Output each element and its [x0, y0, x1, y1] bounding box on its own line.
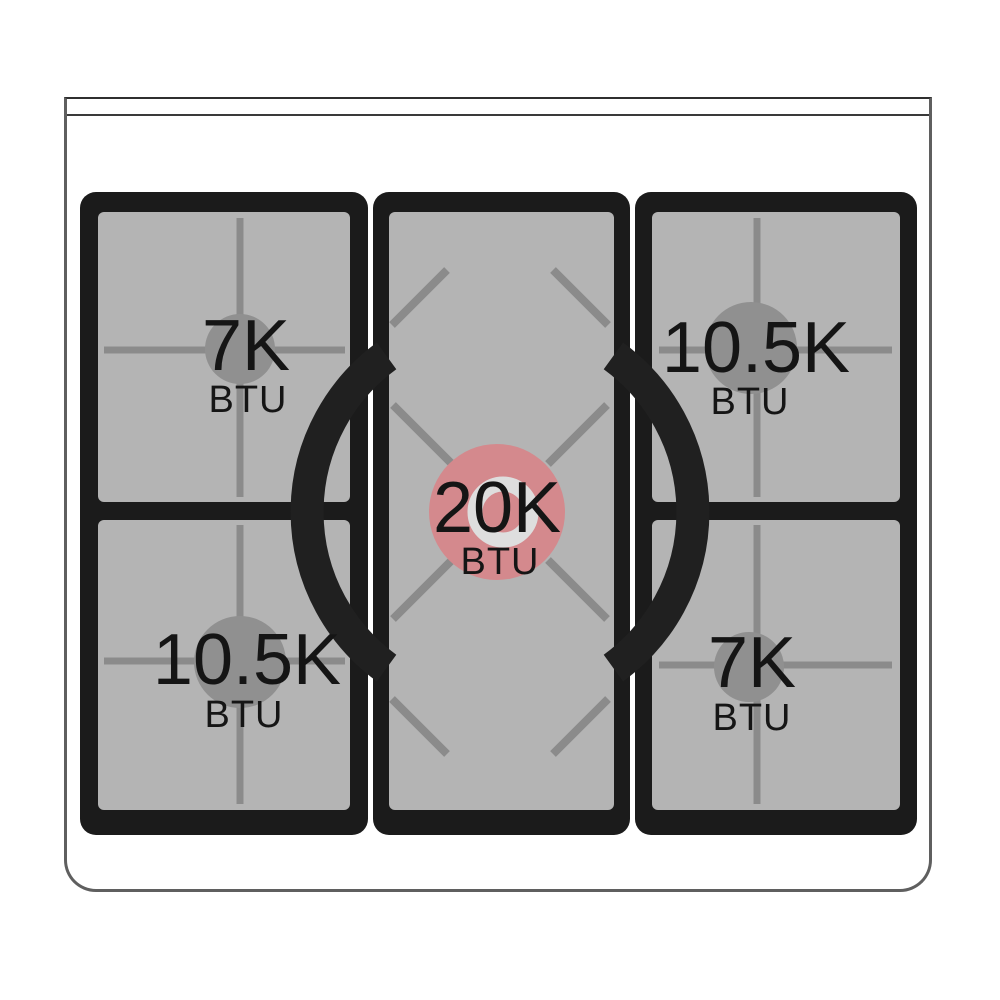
cooktop-diagram: 7K BTU 10.5K BTU 20K BTU 10.5K BTU 7K BT…	[0, 0, 1000, 1000]
burner-unit-bottom-right: BTU	[713, 699, 792, 737]
burner-value-top-right: 10.5K	[662, 312, 850, 384]
burner-unit-bottom-left: BTU	[205, 696, 284, 734]
burner-value-center: 20K	[433, 472, 561, 544]
burner-unit-center: BTU	[461, 543, 540, 581]
burner-unit-top-left: BTU	[209, 381, 288, 419]
cooktop-back-trim-line	[67, 114, 929, 116]
burner-value-bottom-left: 10.5K	[153, 624, 341, 696]
burner-value-top-left: 7K	[202, 310, 290, 382]
burner-value-bottom-right: 7K	[708, 627, 796, 699]
burner-unit-top-right: BTU	[711, 383, 790, 421]
grate-panel-left	[80, 192, 368, 835]
